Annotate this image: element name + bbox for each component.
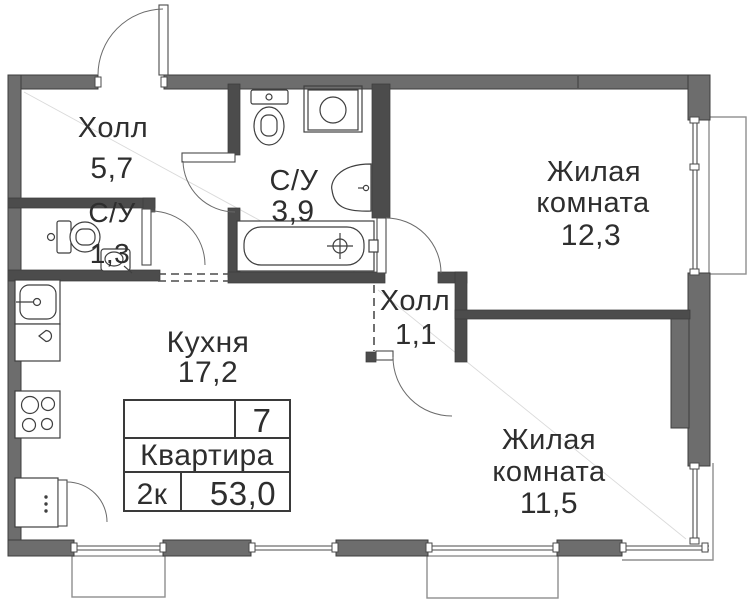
bathroom-sink-icon bbox=[332, 164, 371, 211]
table-total-area: 53,0 bbox=[210, 475, 276, 512]
room-label-living2-name-line1: Жилая bbox=[502, 424, 596, 456]
room-label-kitchen-area: 17,2 bbox=[178, 356, 238, 389]
room-label-hall-inner-name: Холл bbox=[380, 285, 450, 317]
room-label-kitchen-name: Кухня bbox=[167, 326, 250, 359]
room-label-bathroom-main-name: С/У bbox=[270, 165, 319, 197]
window-living2-corner bbox=[620, 463, 709, 552]
stove-icon bbox=[15, 391, 60, 438]
floor-plan-drawing: Холл 5,7 С/У 1,3 С/У 3,9 Жилая комната 1… bbox=[0, 0, 750, 600]
room-label-hall-main-area: 5,7 bbox=[90, 152, 133, 185]
kitchen-cabinet-icon bbox=[15, 478, 107, 527]
floor-plan: Холл 5,7 С/У 1,3 С/У 3,9 Жилая комната 1… bbox=[0, 0, 750, 600]
toilet-2-icon bbox=[251, 90, 288, 145]
window-kitchen-2 bbox=[249, 543, 338, 552]
room-label-hall-main-name: Холл bbox=[78, 112, 148, 144]
balcony-right bbox=[709, 117, 746, 274]
window-living2-bottom bbox=[426, 543, 559, 552]
table-flat-number: 7 bbox=[253, 402, 272, 439]
kitchen-counter-icon bbox=[15, 324, 60, 361]
room-label-bathroom-small-area: 1,3 bbox=[90, 238, 130, 269]
room-label-living1-name-line2: комната bbox=[536, 187, 650, 219]
door-living-room-2 bbox=[376, 351, 452, 416]
room-label-living1-name-line1: Жилая bbox=[547, 156, 641, 188]
table-flat-label: Квартира bbox=[140, 439, 274, 472]
kitchen-sink-icon bbox=[15, 280, 60, 324]
room-label-living2-name-line2: комната bbox=[492, 456, 606, 488]
washing-machine-icon bbox=[304, 86, 362, 132]
table-rooms-count: 2к bbox=[137, 478, 168, 511]
window-kitchen-1 bbox=[71, 543, 166, 552]
room-label-bathroom-main-area: 3,9 bbox=[271, 195, 314, 228]
balcony-bottom-right bbox=[427, 556, 558, 598]
room-label-living2-area: 11,5 bbox=[520, 487, 578, 520]
window-living1-right bbox=[690, 117, 699, 275]
room-label-bathroom-small-name: С/У bbox=[88, 197, 135, 228]
room-label-hall-inner-area: 1,1 bbox=[395, 319, 437, 351]
bathtub-icon bbox=[237, 221, 378, 271]
room-label-living1-area: 12,3 bbox=[561, 219, 621, 252]
apartment-info-table: 7 Квартира 2к 53,0 bbox=[124, 400, 290, 512]
door-living-room-1 bbox=[377, 218, 441, 273]
balcony-bottom-left bbox=[72, 556, 165, 597]
door-bathroom-small bbox=[142, 209, 205, 265]
entrance-door bbox=[95, 5, 168, 87]
